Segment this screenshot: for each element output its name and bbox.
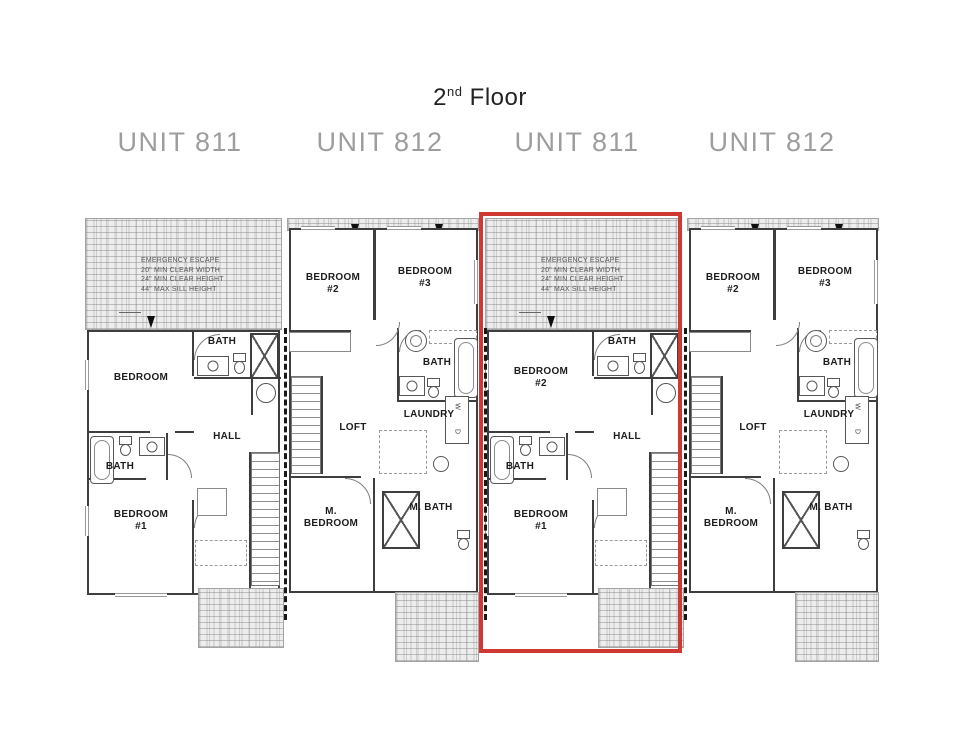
note-leader-line bbox=[119, 312, 141, 313]
room-label-bedroom: BEDROOM bbox=[93, 372, 189, 384]
emergency-line: 24" MIN CLEAR HEIGHT bbox=[141, 275, 273, 285]
wall bbox=[373, 478, 375, 592]
label-line: #1 bbox=[91, 521, 191, 533]
emergency-line: 20" MIN CLEAR WIDTH bbox=[141, 266, 273, 276]
pedestal-sink bbox=[405, 330, 427, 352]
label-line: BEDROOM bbox=[91, 509, 191, 521]
room-label-loft: LOFT bbox=[321, 422, 385, 434]
label-line: BEDROOM bbox=[687, 518, 775, 530]
toilet-fixture bbox=[233, 353, 246, 374]
title-number: 2 bbox=[433, 84, 447, 111]
bath-sink bbox=[799, 376, 825, 396]
linen-circle bbox=[256, 383, 276, 403]
window-marker bbox=[85, 506, 89, 536]
window-marker bbox=[787, 226, 821, 230]
room-label-loft: LOFT bbox=[721, 422, 785, 434]
highlight-box bbox=[479, 212, 682, 653]
escape-arrow-icon bbox=[147, 316, 155, 328]
wall bbox=[773, 230, 776, 320]
window-marker bbox=[701, 226, 735, 230]
window-marker bbox=[387, 226, 421, 230]
wall bbox=[773, 478, 775, 592]
room-label-bath: BATH bbox=[97, 461, 143, 473]
emergency-line: EMERGENCY ESCAPE bbox=[141, 256, 273, 266]
room-label-laundry: LAUNDRY bbox=[389, 409, 469, 421]
label-line: M. bbox=[687, 506, 775, 518]
unit-label-812-a: UNIT 812 bbox=[280, 127, 480, 158]
label-line: M. bbox=[287, 506, 375, 518]
roof-patch bbox=[395, 592, 479, 662]
window-marker bbox=[115, 593, 167, 597]
party-wall-line bbox=[684, 328, 687, 620]
stairs bbox=[251, 452, 280, 586]
closet bbox=[779, 430, 827, 474]
label-line: BEDROOM bbox=[693, 272, 773, 284]
label-line: BEDROOM bbox=[287, 518, 375, 530]
emergency-line: 44" MAX SILL HEIGHT bbox=[141, 285, 273, 295]
room-label-master-bath: M. BATH bbox=[391, 502, 471, 514]
bath-sink bbox=[399, 376, 425, 396]
label-line: BEDROOM bbox=[293, 272, 373, 284]
unit-label-811-a: UNIT 811 bbox=[80, 127, 280, 158]
room-label-master-bedroom: M.BEDROOM bbox=[287, 506, 375, 529]
closet bbox=[197, 488, 227, 516]
bathtub bbox=[854, 338, 878, 398]
toilet-fixture bbox=[857, 530, 870, 550]
label-line: #3 bbox=[781, 278, 869, 290]
label-line: #2 bbox=[693, 284, 773, 296]
wall bbox=[175, 431, 194, 433]
bath-sink bbox=[197, 356, 229, 376]
party-wall-line bbox=[284, 328, 287, 620]
window-marker bbox=[474, 260, 478, 304]
roof-patch bbox=[198, 588, 284, 648]
room-label-bedroom2: BEDROOM#2 bbox=[293, 272, 373, 295]
stairs bbox=[691, 376, 721, 474]
toilet-fixture bbox=[427, 378, 440, 398]
page-title: 2nd Floor bbox=[0, 84, 960, 112]
unit-812-plan-a: BEDROOM#2 BEDROOM#3 BATH LAUNDRY W D LOF… bbox=[287, 210, 483, 666]
wall bbox=[88, 431, 150, 433]
window-marker bbox=[85, 360, 89, 390]
fixture-circle bbox=[833, 456, 849, 472]
label-line: BEDROOM bbox=[781, 266, 869, 278]
shower-stall bbox=[782, 491, 820, 549]
toilet-fixture bbox=[457, 530, 470, 550]
floor-plan-page: 2nd Floor UNIT 811 UNIT 812 UNIT 811 UNI… bbox=[0, 0, 960, 742]
room-label-bedroom2: BEDROOM#2 bbox=[693, 272, 773, 295]
window-seat bbox=[289, 332, 351, 352]
room-label-master-bath: M. BATH bbox=[791, 502, 871, 514]
pedestal-sink bbox=[805, 330, 827, 352]
fixture-circle bbox=[433, 456, 449, 472]
cabinet bbox=[195, 540, 247, 566]
unit-label-811-b: UNIT 811 bbox=[477, 127, 677, 158]
unit-811-plan-a: EMERGENCY ESCAPE 20" MIN CLEAR WIDTH 24"… bbox=[85, 210, 285, 666]
room-label-laundry: LAUNDRY bbox=[789, 409, 869, 421]
stairs bbox=[291, 376, 321, 474]
shower-stall bbox=[382, 491, 420, 549]
room-label-master-bedroom: M.BEDROOM bbox=[687, 506, 775, 529]
roof-patch bbox=[795, 592, 879, 662]
emergency-escape-note: EMERGENCY ESCAPE 20" MIN CLEAR WIDTH 24"… bbox=[141, 256, 273, 294]
dryer-label: D bbox=[454, 429, 461, 434]
label-line: #3 bbox=[381, 278, 469, 290]
bathtub bbox=[90, 436, 114, 484]
room-label-hall: HALL bbox=[199, 431, 255, 443]
unit-label-812-b: UNIT 812 bbox=[672, 127, 872, 158]
bath-sink bbox=[139, 437, 165, 456]
room-label-bedroom3: BEDROOM#3 bbox=[781, 266, 869, 289]
unit-812-plan-b: BEDROOM#2 BEDROOM#3 BATH LAUNDRY W D LOF… bbox=[687, 210, 883, 666]
room-label-bedroom1: BEDROOM#1 bbox=[91, 509, 191, 532]
label-line: BEDROOM bbox=[381, 266, 469, 278]
window-marker bbox=[301, 226, 335, 230]
wall bbox=[251, 379, 253, 415]
wall bbox=[192, 500, 194, 595]
dryer-label: D bbox=[854, 429, 861, 434]
bathtub bbox=[454, 338, 478, 398]
window-marker bbox=[874, 260, 878, 304]
window-seat bbox=[689, 332, 751, 352]
label-line: #2 bbox=[293, 284, 373, 296]
shower-stall bbox=[250, 333, 279, 379]
toilet-fixture bbox=[119, 436, 132, 456]
wall bbox=[373, 230, 376, 320]
title-word: Floor bbox=[462, 84, 526, 111]
closet bbox=[379, 430, 427, 474]
room-label-bath: BATH bbox=[195, 336, 249, 348]
toilet-fixture bbox=[827, 378, 840, 398]
room-label-bedroom3: BEDROOM#3 bbox=[381, 266, 469, 289]
title-ordinal: nd bbox=[447, 84, 462, 99]
